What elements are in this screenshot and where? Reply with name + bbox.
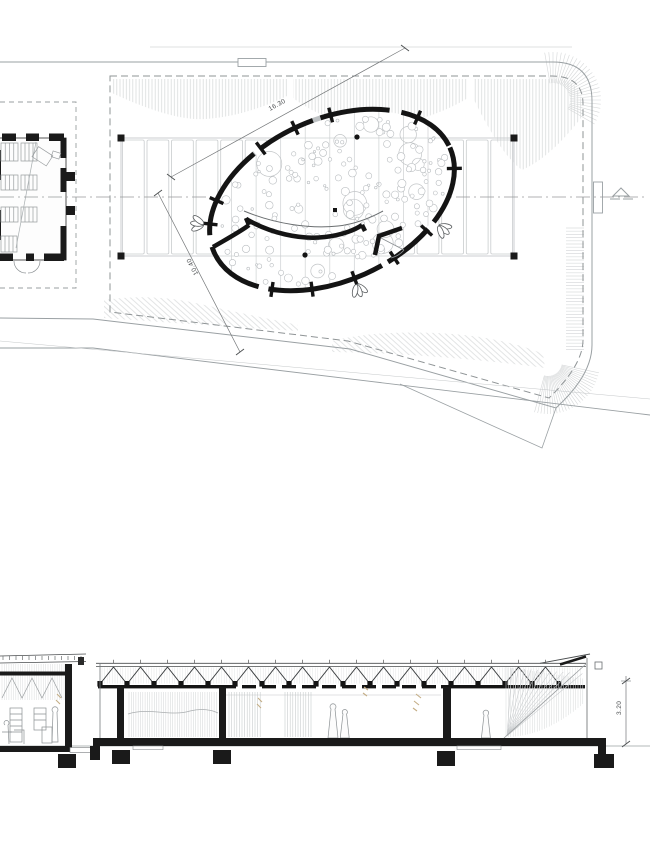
- rafter-ticks: [3, 656, 81, 660]
- slat-panel-1: [229, 692, 260, 737]
- figure-standing-left: [52, 707, 58, 742]
- pavilion-footings: [90, 746, 614, 768]
- architectural-drawing-sheet: 16.30 10.40: [0, 0, 650, 851]
- left-footing: [58, 754, 76, 768]
- column-dot-south: [302, 252, 307, 257]
- curtain-panel: [129, 692, 216, 737]
- gate-tab-top: [238, 59, 266, 67]
- bottom-chord-left: [98, 685, 222, 688]
- landscape-hatch-right-band: [566, 228, 584, 350]
- dim-label-height: 3.20: [616, 701, 623, 715]
- section-left-building: [0, 654, 94, 768]
- dim-label-minor: 10.40: [186, 257, 201, 276]
- pavilion-floor-slab: [93, 738, 606, 746]
- left-floor-slab: [0, 746, 70, 752]
- truss-zigzag: [100, 667, 559, 684]
- access-road: [0, 341, 650, 448]
- classroom-doors: [14, 261, 40, 273]
- left-column: [65, 664, 72, 752]
- ramp-recess-2: [457, 746, 501, 750]
- slat-panel-2: [285, 692, 311, 737]
- section-pavilion: [56, 654, 614, 768]
- dimension-section-height: 3.20: [616, 676, 631, 747]
- column-dot-north: [354, 134, 359, 139]
- site-plan: 16.30 10.40: [0, 45, 650, 448]
- ramp-recess-1: [133, 746, 163, 750]
- left-interior-fixtures: [2, 707, 58, 744]
- sketch-birds: [56, 687, 421, 711]
- gate-tab-right: [594, 182, 603, 213]
- building-section: 3.20: [0, 654, 650, 768]
- section-figures: [328, 704, 490, 738]
- left-roof-beam: [0, 672, 72, 676]
- classroom-building-plan: [0, 134, 75, 274]
- truss-apex-ticks: [114, 660, 546, 664]
